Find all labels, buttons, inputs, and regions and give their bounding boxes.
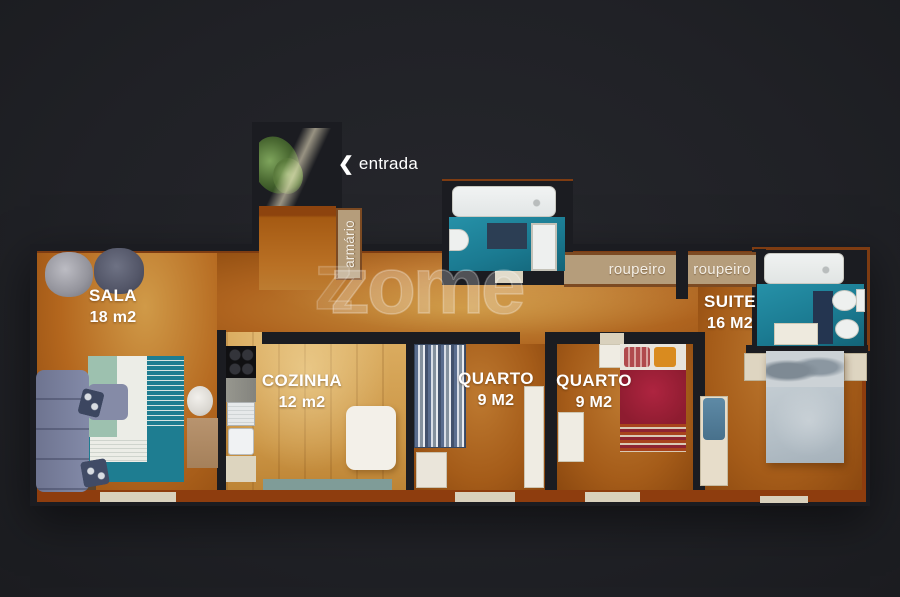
bed-suite — [766, 351, 844, 463]
bathtub — [452, 186, 556, 217]
suite-label: SUITE 16 M2 — [680, 290, 780, 335]
roupeiro-right-closet: roupeiro — [688, 252, 756, 287]
cozinha-label: COZINHA 12 m2 — [244, 369, 360, 414]
wall-kitchen-top — [262, 332, 406, 344]
wall-sala-kitchen — [217, 330, 226, 497]
wall-quarto1-top — [414, 332, 520, 344]
suite-area: 16 M2 — [680, 313, 780, 335]
pouf-white — [187, 386, 213, 416]
entrance-label: ❮ entrada — [338, 151, 418, 177]
sala-label: SALA 18 m2 — [58, 284, 168, 329]
entry-corridor-floor — [259, 206, 336, 290]
suite-shower-tub — [764, 253, 844, 284]
entrance-arrow-icon: ❮ — [338, 153, 354, 176]
suite-chair — [703, 398, 725, 440]
toilet-tank — [856, 289, 865, 312]
suite-name: SUITE — [680, 290, 780, 313]
kitchen-counter — [226, 346, 256, 482]
suite-threshold — [760, 496, 808, 503]
bidet — [835, 319, 859, 339]
suite-nightstand-left — [744, 353, 767, 381]
shower-tray — [531, 223, 557, 271]
armario-label: armário — [342, 220, 357, 268]
quarto1-name: QUARTO — [440, 367, 552, 390]
bed-suite-pillows — [766, 351, 844, 387]
bathroom-door-threshold — [495, 271, 523, 283]
quarto2-name: QUARTO — [538, 369, 650, 392]
floorplan-canvas: ❮ entrada armário roupeiro roupeiro — [0, 0, 900, 597]
desk-quarto2 — [558, 412, 584, 462]
suite-nightstand-right — [844, 353, 867, 381]
bathroom-sink — [449, 229, 469, 251]
quarto1-label: QUARTO 9 M2 — [440, 367, 552, 412]
wall-quarto2-top — [557, 332, 693, 344]
counter-cabinet — [226, 456, 256, 482]
roupeiro-left-closet: roupeiro — [564, 252, 676, 287]
toilet — [832, 290, 857, 311]
sala-area: 18 m2 — [58, 307, 168, 329]
entry-room-floor — [259, 128, 336, 206]
dishwasher — [228, 428, 254, 455]
sofa-pillow-2 — [80, 458, 110, 488]
bath-mat — [487, 223, 527, 249]
bed2-pillow-red — [624, 347, 650, 367]
kitchen-island-table — [346, 406, 396, 470]
quarto2-area: 9 M2 — [538, 392, 650, 414]
sala-threshold — [100, 492, 176, 502]
wall-kitchen-quarto1 — [406, 332, 414, 497]
nightstand-quarto1 — [416, 452, 447, 488]
roupeiro-right-label: roupeiro — [693, 261, 750, 278]
entrance-text: entrada — [359, 154, 418, 174]
bed-suite-cover — [766, 387, 844, 463]
entry-floor-sheen — [259, 128, 336, 206]
bed2-pillow-orange — [654, 347, 676, 367]
bed2-foot-throw — [620, 424, 686, 452]
quarto1-threshold — [455, 492, 515, 502]
quarto2-door-threshold — [600, 333, 624, 344]
quarto2-threshold — [585, 492, 640, 502]
wall-quarto1-quarto2 — [545, 332, 557, 497]
cozinha-name: COZINHA — [244, 369, 360, 392]
quarto1-area: 9 M2 — [440, 390, 552, 412]
roupeiro-left-label: roupeiro — [609, 261, 666, 278]
suite-vanity — [774, 323, 818, 345]
armario-closet: armário — [336, 208, 362, 280]
side-cabinet — [187, 418, 218, 468]
rug-striped-panel — [147, 356, 184, 427]
cozinha-area: 12 m2 — [244, 392, 360, 414]
sala-name: SALA — [58, 284, 168, 307]
quarto2-label: QUARTO 9 M2 — [538, 369, 650, 414]
